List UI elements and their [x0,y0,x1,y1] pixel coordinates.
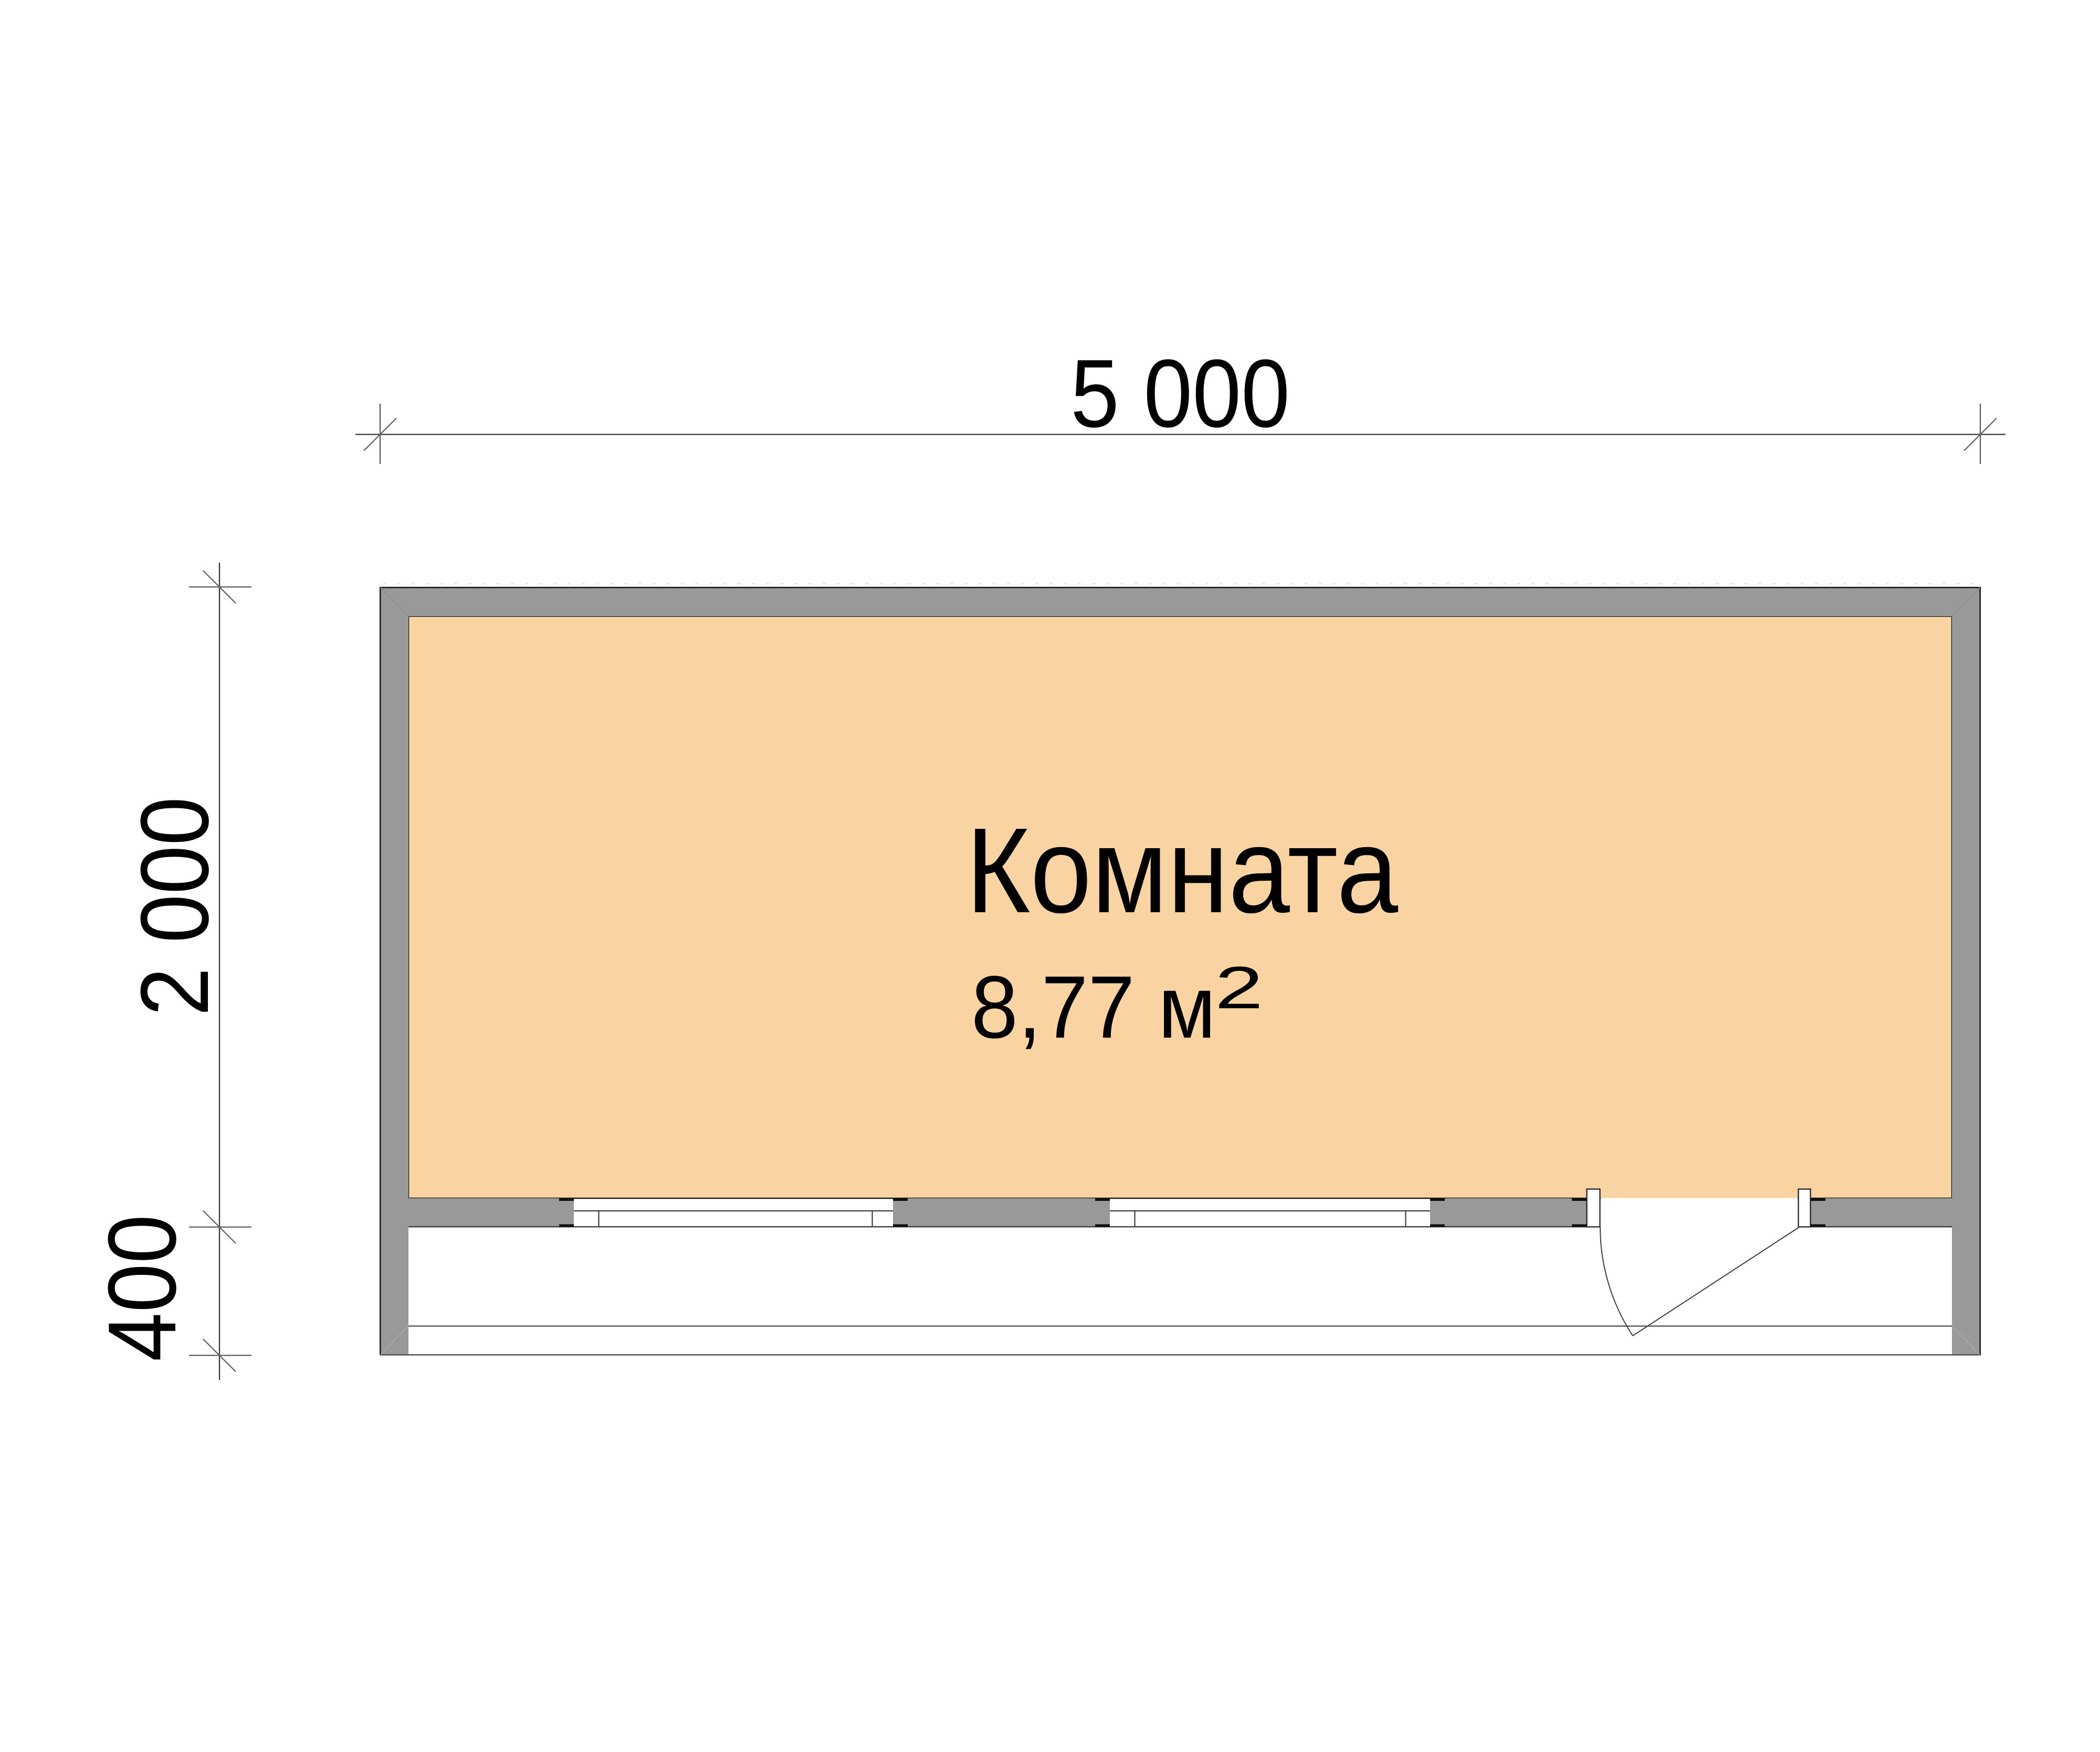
svg-text:Комната: Комната [966,803,1398,938]
svg-text:400: 400 [88,1215,196,1362]
svg-text:2: 2 [1215,955,1263,1021]
svg-text:8,77 м: 8,77 м [971,957,1216,1057]
svg-text:5 000: 5 000 [1070,339,1290,447]
svg-text:2 000: 2 000 [120,797,228,1016]
